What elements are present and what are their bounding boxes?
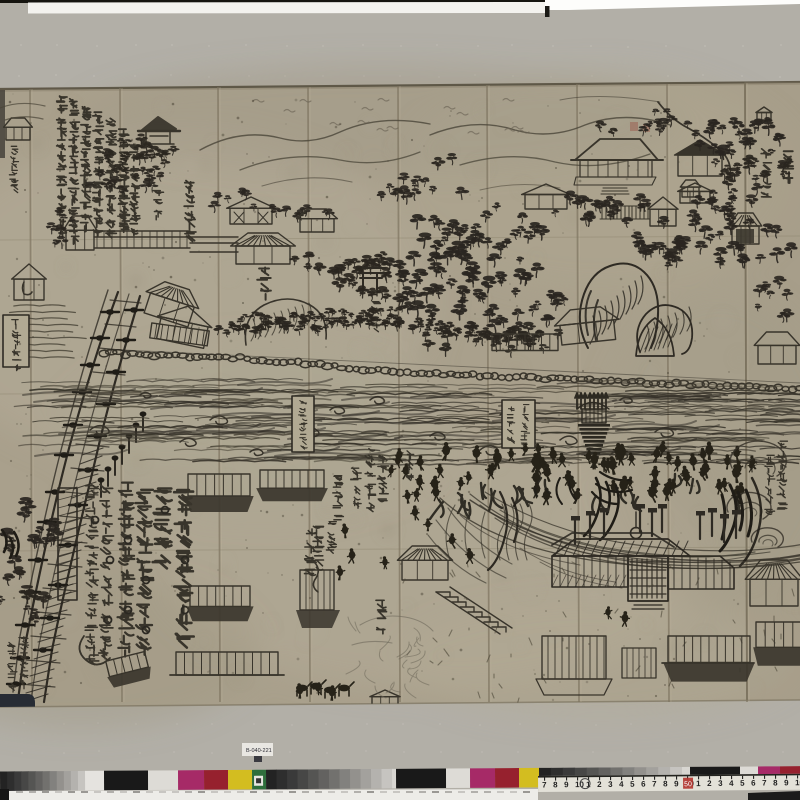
svg-text:7: 7 [652, 779, 657, 788]
svg-text:8: 8 [773, 778, 778, 787]
svg-text:7: 7 [542, 780, 547, 789]
svg-text:50: 50 [684, 781, 692, 788]
svg-text:9: 9 [784, 778, 789, 787]
svg-text:7: 7 [762, 779, 767, 788]
svg-text:B-040-221: B-040-221 [246, 748, 272, 754]
svg-text:1: 1 [696, 779, 701, 788]
svg-text:6: 6 [641, 780, 646, 789]
svg-text:4: 4 [619, 780, 624, 789]
svg-text:3: 3 [718, 779, 723, 788]
svg-text:10: 10 [795, 778, 800, 787]
svg-text:9: 9 [674, 779, 679, 788]
svg-text:2: 2 [597, 780, 602, 789]
svg-text:5: 5 [630, 780, 635, 789]
svg-text:5: 5 [740, 779, 745, 788]
svg-text:3: 3 [608, 780, 613, 789]
svg-text:2: 2 [707, 779, 712, 788]
svg-text:8: 8 [553, 780, 558, 789]
svg-text:9: 9 [564, 780, 569, 789]
svg-text:4: 4 [729, 779, 734, 788]
svg-text:6: 6 [751, 779, 756, 788]
svg-text:8: 8 [663, 779, 668, 788]
